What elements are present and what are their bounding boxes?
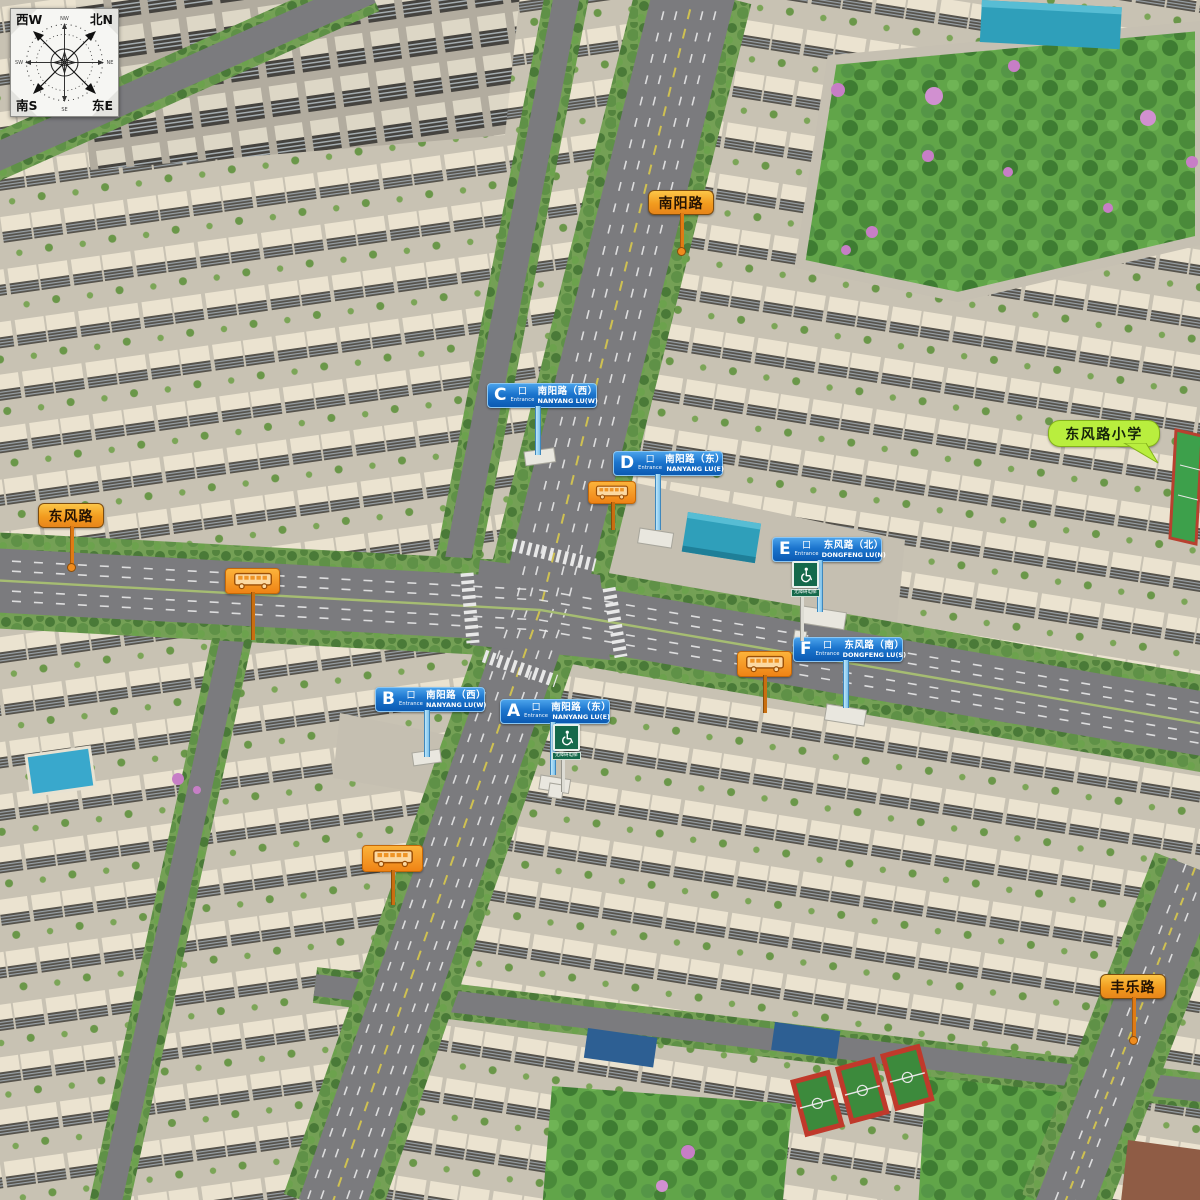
entrance-word: Entrance bbox=[638, 465, 662, 471]
entrance-name-en: DONGFENG LU(N) bbox=[822, 551, 886, 559]
bus-stop-marker[interactable] bbox=[588, 481, 636, 504]
entrance-word: Entrance bbox=[510, 397, 534, 403]
entrance-word: Entrance bbox=[524, 713, 548, 719]
wheelchair-icon bbox=[553, 724, 580, 751]
label-pin-dot bbox=[677, 247, 686, 256]
accessible-elevator-label: 无障碍电梯 bbox=[552, 752, 581, 760]
road-label-dongfeng[interactable]: 东风路 bbox=[38, 503, 104, 528]
label-pin-dot bbox=[67, 563, 76, 572]
entrance-label-c[interactable]: C 口 Entrance 南阳路（西） NANYANG LU(W) bbox=[487, 383, 597, 408]
entrance-name-en: NANYANG LU(E) bbox=[666, 465, 724, 473]
wheelchair-icon bbox=[792, 561, 819, 588]
gate-char: 口 bbox=[802, 542, 811, 551]
entrance-letter: B bbox=[382, 691, 395, 708]
gate-char: 口 bbox=[406, 692, 415, 701]
entrance-name-cn: 南阳路（西） bbox=[426, 691, 486, 701]
entrance-word: Entrance bbox=[795, 551, 819, 557]
label-overlay: NW NE SE SW 西W 北N 南S 东E 南阳路 东风路 丰乐路 bbox=[0, 0, 1200, 1200]
entrance-name-cn: 南阳路（西） bbox=[538, 387, 598, 397]
entrance-letter: A bbox=[507, 703, 520, 720]
marker-pole bbox=[251, 592, 255, 640]
entrance-name-cn: 南阳路（东） bbox=[665, 455, 725, 465]
gate-char: 口 bbox=[518, 388, 527, 397]
road-label-nanyang[interactable]: 南阳路 bbox=[648, 190, 714, 215]
bus-stop-marker[interactable] bbox=[225, 568, 280, 594]
bus-icon bbox=[588, 481, 636, 504]
compass-mid-top: NW bbox=[60, 16, 69, 22]
entrance-name-cn: 东风路（南） bbox=[844, 641, 904, 651]
entrance-label-e[interactable]: E 口 Entrance 东风路（北） DONGFENG LU(N) bbox=[772, 537, 882, 562]
label-pin bbox=[424, 710, 430, 757]
bus-icon bbox=[737, 651, 792, 677]
label-pin bbox=[680, 213, 684, 248]
entrance-label-d[interactable]: D 口 Entrance 南阳路（东） NANYANG LU(E) bbox=[613, 451, 723, 476]
road-label-text: 丰乐路 bbox=[1100, 974, 1166, 999]
road-label-text: 南阳路 bbox=[648, 190, 714, 215]
road-label-text: 东风路 bbox=[38, 503, 104, 528]
label-pin bbox=[655, 474, 661, 530]
gate-char: 口 bbox=[823, 642, 832, 651]
entrance-word: Entrance bbox=[816, 651, 840, 657]
gate-char: 口 bbox=[532, 704, 541, 713]
entrance-letter: F bbox=[800, 641, 812, 658]
marker-pole bbox=[800, 597, 804, 641]
bus-stop-marker[interactable] bbox=[737, 651, 792, 677]
road-label-fengle[interactable]: 丰乐路 bbox=[1100, 974, 1166, 999]
entrance-name-en: NANYANG LU(W) bbox=[426, 701, 486, 709]
marker-pole bbox=[391, 870, 395, 905]
compass-mid-bottom: SE bbox=[61, 107, 67, 113]
entrance-letter: C bbox=[494, 387, 506, 404]
map-canvas: NW NE SE SW 西W 北N 南S 东E 南阳路 东风路 丰乐路 bbox=[0, 0, 1200, 1200]
entrance-name-en: NANYANG LU(E) bbox=[552, 713, 610, 721]
entrance-label-f[interactable]: F 口 Entrance 东风路（南） DONGFENG LU(S) bbox=[793, 637, 903, 662]
compass-label-north: 北N bbox=[90, 13, 113, 26]
entrance-name-en: NANYANG LU(W) bbox=[538, 397, 598, 405]
entrance-name-cn: 南阳路（东） bbox=[551, 703, 611, 713]
label-pin-dot bbox=[1129, 1036, 1138, 1045]
entrance-label-b[interactable]: B 口 Entrance 南阳路（西） NANYANG LU(W) bbox=[375, 687, 485, 712]
marker-pole bbox=[611, 502, 615, 530]
entrance-name-en: DONGFENG LU(S) bbox=[843, 651, 906, 659]
accessible-elevator-sign: 无障碍电梯 bbox=[552, 724, 581, 760]
label-pin bbox=[1132, 997, 1136, 1037]
accessible-elevator-label: 无障碍电梯 bbox=[791, 589, 820, 597]
bus-icon bbox=[225, 568, 280, 594]
compass-label-east: 东E bbox=[92, 99, 113, 112]
entrance-letter: D bbox=[620, 455, 634, 472]
compass-mid-right: NE bbox=[107, 60, 114, 66]
entrance-label-a[interactable]: A 口 Entrance 南阳路（东） NANYANG LU(E) bbox=[500, 699, 610, 724]
callout-tail bbox=[1106, 443, 1162, 465]
label-pin bbox=[70, 526, 74, 564]
school-callout[interactable]: 东风路小学 bbox=[1048, 420, 1160, 447]
entrance-word: Entrance bbox=[399, 701, 423, 707]
accessible-elevator-sign: 无障碍电梯 bbox=[791, 561, 820, 597]
entrance-name-cn: 东风路（北） bbox=[824, 541, 884, 551]
compass-label-south: 南S bbox=[16, 99, 38, 112]
label-pin bbox=[535, 406, 541, 455]
bus-stop-marker[interactable] bbox=[362, 845, 423, 872]
compass-label-west: 西W bbox=[16, 13, 42, 26]
gate-char: 口 bbox=[646, 456, 655, 465]
marker-pole bbox=[763, 675, 767, 713]
compass-rose: NW NE SE SW 西W 北N 南S 东E bbox=[10, 8, 119, 117]
label-pin bbox=[843, 660, 849, 708]
entrance-letter: E bbox=[779, 541, 791, 558]
compass-mid-left: SW bbox=[15, 60, 23, 66]
bus-icon bbox=[362, 845, 423, 872]
marker-pole bbox=[561, 760, 565, 792]
